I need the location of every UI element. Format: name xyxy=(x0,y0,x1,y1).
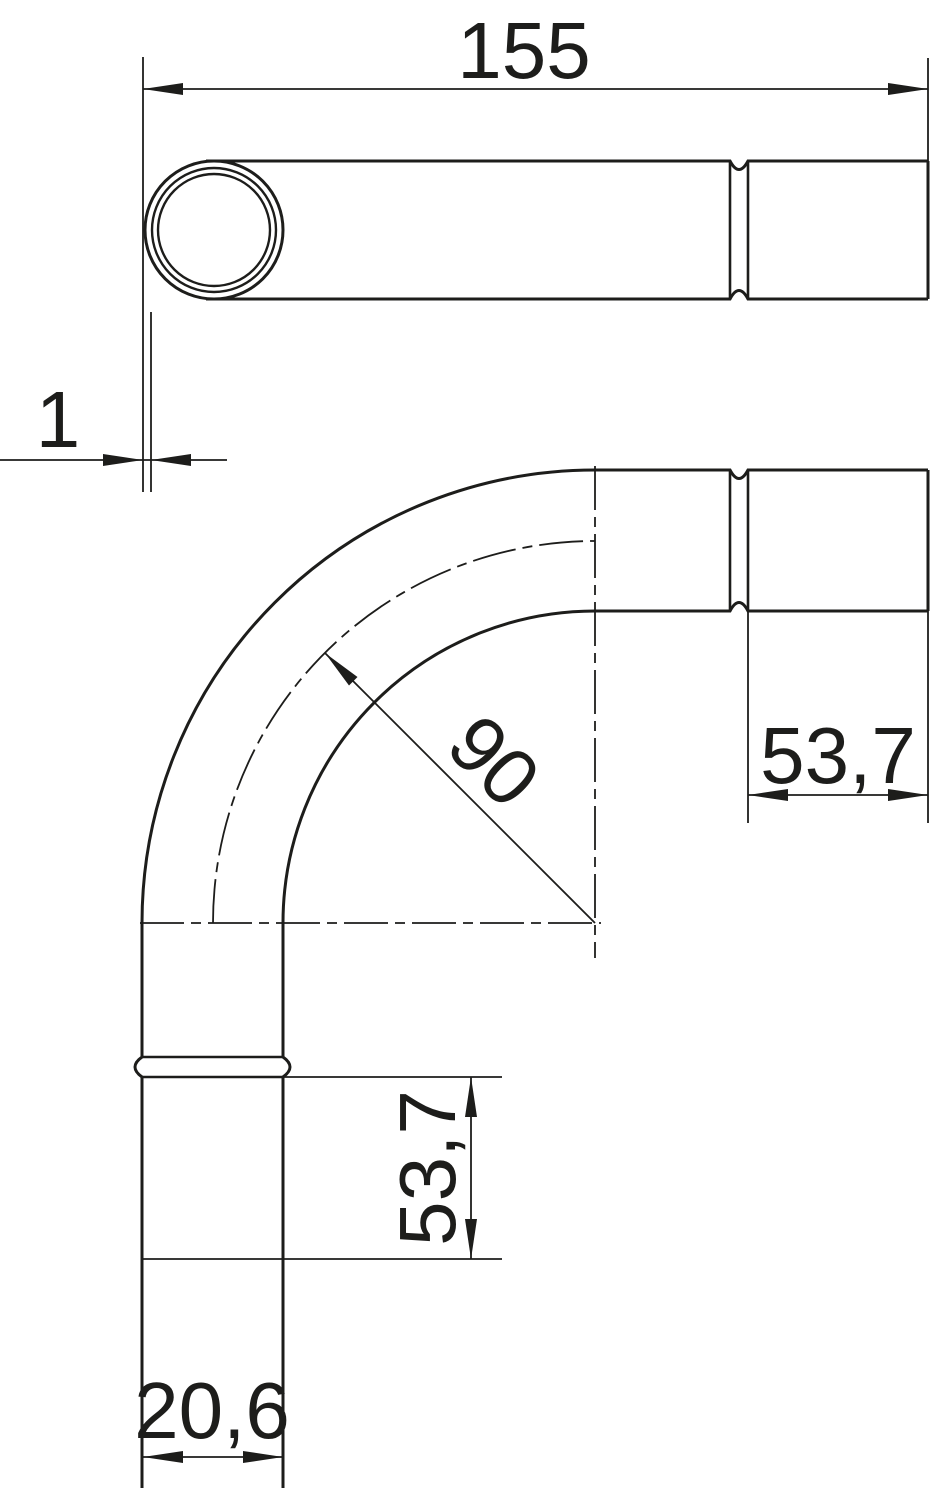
arrowhead xyxy=(151,454,191,466)
straight-pipe-side-view xyxy=(145,161,928,299)
dimension-outer-diameter: 20,6 xyxy=(134,1366,290,1463)
technical-drawing-canvas: 155 1 90 53,7 xyxy=(0,0,931,1488)
dimension-socket-length-bottom: 53,7 xyxy=(143,1077,502,1259)
horizontal-pipe-bottom-edge xyxy=(595,603,928,612)
pipe-end-outer-circle xyxy=(145,161,283,299)
bend-90-degree-view xyxy=(135,466,928,1488)
bend-inner-contour xyxy=(283,611,595,1488)
arrowhead xyxy=(888,83,928,95)
pipe-end-inner-circle-2 xyxy=(158,174,270,286)
bend-outer-contour xyxy=(135,470,595,1488)
dimension-socket-length-right: 53,7 xyxy=(748,611,928,823)
pipe-end-inner-circle-1 xyxy=(152,168,276,292)
dimension-bend-radius: 90 xyxy=(325,653,595,923)
dim-overall-length-label: 155 xyxy=(457,6,590,95)
dimension-wall-thickness: 1 xyxy=(0,312,227,492)
arrowhead xyxy=(143,83,183,95)
pipe-bottom-edge xyxy=(206,291,928,300)
arrowhead xyxy=(103,454,143,466)
dim-bend-radius-label: 90 xyxy=(431,698,557,824)
dim-wall-thickness-label: 1 xyxy=(36,375,81,464)
drawing-stage: 155 1 90 53,7 xyxy=(0,0,931,1488)
dim-outer-diameter-label: 20,6 xyxy=(134,1366,290,1455)
arrowhead xyxy=(325,653,358,686)
horizontal-pipe-top-edge xyxy=(595,470,928,479)
dimension-overall-length: 155 xyxy=(143,6,928,492)
pipe-top-edge xyxy=(206,161,928,170)
dim-socket-length-right-label: 53,7 xyxy=(760,711,916,800)
dim-socket-length-bottom-label: 53,7 xyxy=(383,1090,472,1246)
